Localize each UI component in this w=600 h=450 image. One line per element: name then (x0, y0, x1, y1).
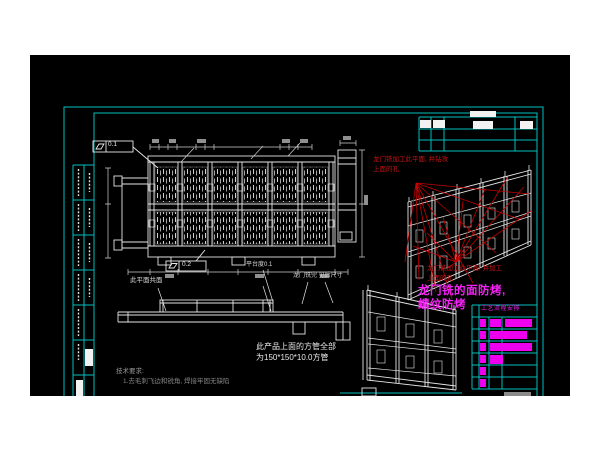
tech-req-item1: 1.去毛刺飞边和锐角, 焊接牢固无缺陷 (123, 379, 230, 386)
platform-flatness-label: 平台度0.1 (246, 262, 272, 268)
coplanar-label: 此平面共面 (130, 278, 163, 285)
red-note-top-line2: 上面的孔 (373, 167, 399, 174)
cad-screenshot-page: 0.1 0.2 此平面共面 平台度0.1 龙门铣完 见后尺寸 此产品上面的方管全… (0, 0, 600, 450)
magenta-note-line1: 龙门铣的面防烤, (418, 286, 506, 298)
cutoff-text-smudge (504, 392, 531, 396)
red-note-top-line1: 龙门铣加工此平面, 并钻攻 (373, 157, 448, 164)
red-note-mid-line2: 上面的孔 (427, 276, 453, 283)
tube-note-line1: 此产品上面的方管全部 (256, 343, 336, 351)
fcf-bottom-value: 0.2 (182, 262, 191, 269)
fcf-top-value: 0.1 (108, 142, 117, 149)
tech-req-title: 技术要求: (116, 369, 144, 376)
cad-drawing-canvas[interactable] (0, 0, 600, 450)
magenta-note-line2: 螺纹防烤 (418, 300, 466, 312)
process-table-header: 工艺流程安排 (481, 306, 520, 312)
tube-note-line2: 为150*150*10.0方管 (256, 354, 329, 362)
mill-dim-label: 龙门铣完 见后尺寸 (293, 273, 343, 279)
red-note-mid-line1: 龙门铣加工此平面, 并加工 (427, 266, 502, 273)
